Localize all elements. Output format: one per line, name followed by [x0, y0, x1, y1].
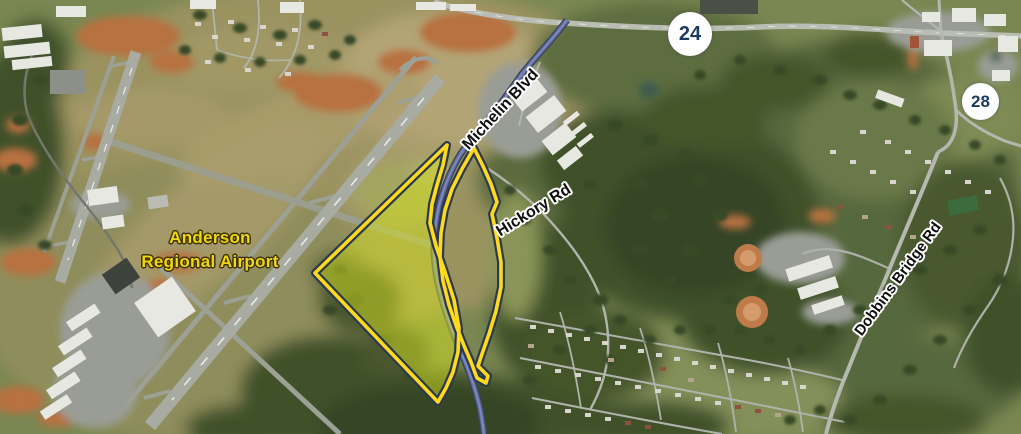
- route-shield-24-number: 24: [679, 23, 701, 46]
- aerial-map: Anderson Regional Airport Michelin Blvd …: [0, 0, 1021, 434]
- route-shield-28-number: 28: [971, 92, 990, 112]
- aerial-basemap: [0, 0, 1021, 434]
- route-shield-28: 28: [962, 83, 999, 120]
- route-shield-24: 24: [668, 12, 712, 56]
